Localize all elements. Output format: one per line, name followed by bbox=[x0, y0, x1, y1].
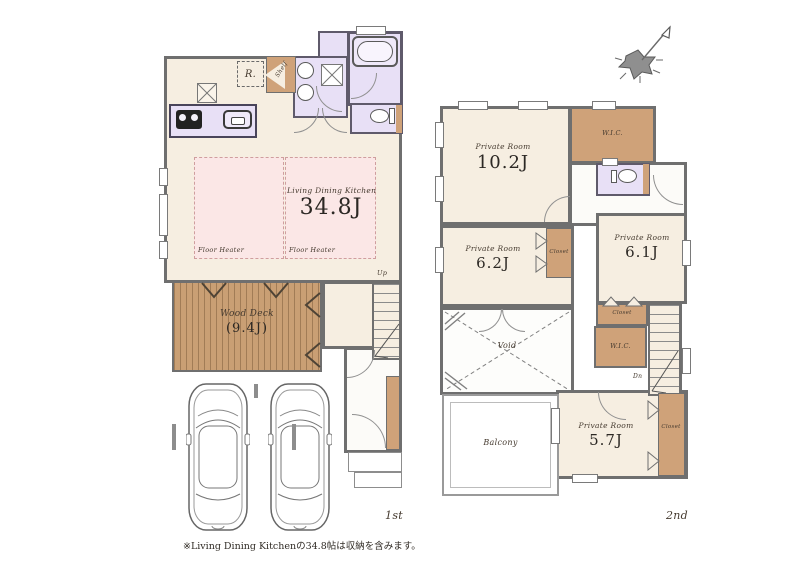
balcony-label: Balcony bbox=[444, 438, 557, 447]
window-marker bbox=[602, 158, 618, 166]
shoe-cabinet bbox=[386, 376, 400, 450]
wood-deck-label: Wood Deck bbox=[174, 309, 320, 319]
stair-direction-line bbox=[372, 282, 402, 360]
toilet-icon bbox=[618, 169, 637, 183]
window-marker bbox=[435, 176, 444, 202]
ldk-name: Living Dining Kitchen bbox=[287, 186, 375, 195]
floorplan-canvas: Wood Deck (9.4J) Floor Heater Floor Heat… bbox=[0, 0, 800, 565]
fridge-space: R. bbox=[237, 61, 264, 87]
stair-direction-line bbox=[648, 303, 682, 396]
window-marker bbox=[356, 26, 386, 35]
room-size: 6.2J bbox=[443, 254, 543, 272]
closet-5-7 bbox=[658, 393, 685, 476]
window-marker bbox=[592, 101, 616, 110]
burner bbox=[191, 114, 198, 121]
toilet-tank bbox=[611, 170, 617, 183]
wall-stub bbox=[172, 424, 176, 450]
floor-heater-label: Floor Heater bbox=[289, 246, 335, 254]
window-marker bbox=[159, 194, 168, 236]
burner bbox=[179, 114, 186, 121]
footnote: ※Living Dining Kitchenの34.8帖は収納を含みます。 bbox=[183, 538, 421, 552]
sink-icon bbox=[297, 84, 314, 101]
porch-step bbox=[348, 452, 402, 472]
north-arrow-icon bbox=[612, 16, 686, 86]
up-label: Up bbox=[377, 269, 387, 277]
room-name: Private Room bbox=[558, 421, 654, 430]
window-marker bbox=[518, 101, 548, 110]
laundry-closet bbox=[318, 31, 349, 59]
kitchen-sink-icon bbox=[223, 110, 252, 129]
sink-icon bbox=[297, 62, 314, 79]
sink-basin bbox=[231, 117, 245, 125]
car-top-view-icon bbox=[268, 382, 332, 532]
window-marker bbox=[458, 101, 488, 110]
void-label: Void bbox=[446, 341, 568, 350]
room-name: Private Room bbox=[443, 244, 543, 253]
window-marker bbox=[159, 241, 168, 259]
wic-label: W.I.C. bbox=[569, 129, 656, 137]
closet-label: Closet bbox=[596, 310, 648, 316]
window-marker bbox=[435, 247, 444, 273]
dn-label: Dn bbox=[633, 373, 642, 380]
floor2-label: 2nd bbox=[648, 509, 688, 522]
wic-label: W.I.C. bbox=[594, 342, 647, 350]
floor1-label: 1st bbox=[363, 509, 403, 522]
bathtub-icon bbox=[352, 36, 398, 67]
ldk-size: 34.8J bbox=[287, 195, 375, 220]
room-name: Private Room bbox=[599, 233, 685, 242]
toilet-cabinet bbox=[643, 164, 649, 194]
fridge-label: R. bbox=[245, 69, 256, 80]
stove-icon bbox=[176, 110, 202, 129]
toilet-tank bbox=[389, 108, 395, 124]
window-marker bbox=[159, 168, 168, 186]
closet-label: Closet bbox=[656, 424, 686, 430]
bathtub-inner bbox=[357, 41, 393, 62]
porch-step bbox=[354, 472, 402, 488]
wall-stub bbox=[254, 384, 258, 398]
closet-label: Closet bbox=[544, 249, 574, 255]
floor-heater-area-left bbox=[194, 157, 284, 259]
toilet-icon bbox=[370, 109, 389, 123]
room-size: 6.1J bbox=[599, 243, 685, 261]
crossed-box-icon bbox=[197, 83, 217, 103]
folding-door-icon bbox=[602, 296, 644, 307]
toilet-cabinet bbox=[396, 105, 402, 133]
window-marker bbox=[682, 240, 691, 266]
crossed-box-icon bbox=[321, 64, 343, 86]
car-top-view-icon bbox=[186, 382, 250, 532]
window-marker bbox=[435, 122, 444, 148]
window-marker bbox=[551, 408, 560, 444]
room-name: Private Room bbox=[443, 142, 563, 151]
wood-deck-size: (9.4J) bbox=[174, 321, 320, 336]
room-size: 10.2J bbox=[443, 152, 563, 173]
wall-stub bbox=[292, 424, 296, 450]
room-size: 5.7J bbox=[558, 431, 654, 449]
window-marker bbox=[682, 348, 691, 374]
floor-heater-label: Floor Heater bbox=[198, 246, 244, 254]
window-marker bbox=[572, 474, 598, 483]
